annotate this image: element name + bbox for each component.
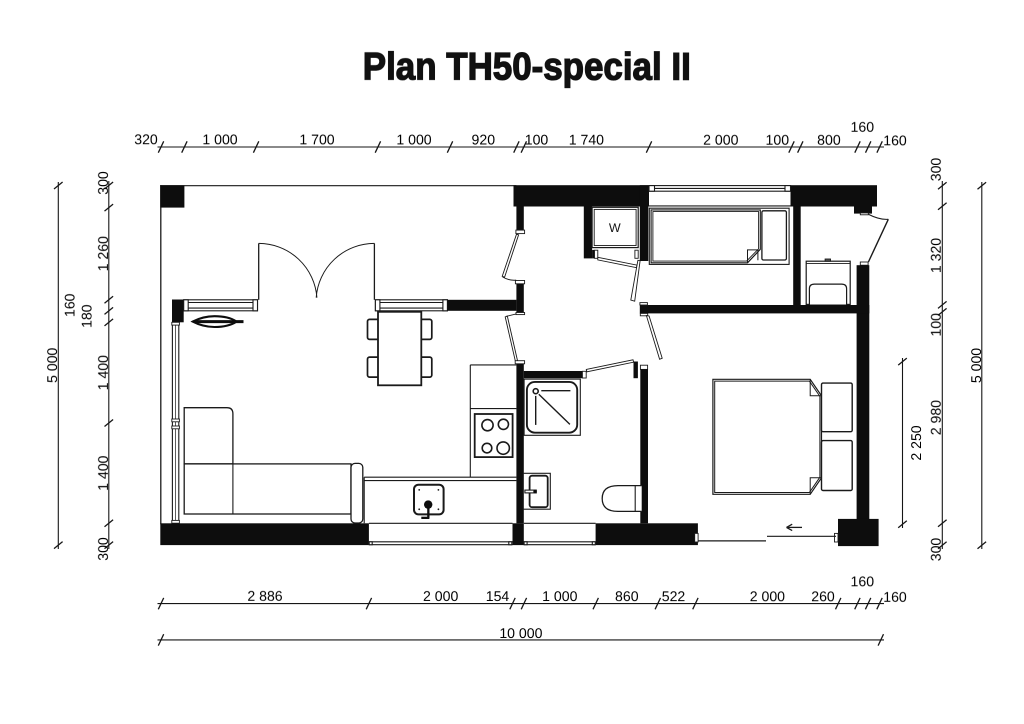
svg-text:920: 920 xyxy=(472,132,496,148)
svg-text:300: 300 xyxy=(95,537,111,561)
svg-text:1 000: 1 000 xyxy=(396,132,431,148)
svg-text:1 260: 1 260 xyxy=(95,236,111,271)
svg-text:160: 160 xyxy=(62,293,78,317)
svg-text:522: 522 xyxy=(662,588,686,604)
svg-text:5 000: 5 000 xyxy=(44,348,60,383)
svg-text:320: 320 xyxy=(134,131,158,147)
svg-text:154: 154 xyxy=(486,588,510,604)
svg-text:1 000: 1 000 xyxy=(202,131,237,147)
svg-text:160: 160 xyxy=(851,573,875,589)
svg-text:260: 260 xyxy=(811,588,835,604)
svg-text:1 740: 1 740 xyxy=(569,132,604,148)
svg-text:2 000: 2 000 xyxy=(703,132,738,148)
svg-text:2 980: 2 980 xyxy=(928,400,944,435)
svg-text:1 700: 1 700 xyxy=(299,131,334,147)
svg-text:10 000: 10 000 xyxy=(499,625,542,641)
svg-text:1 000: 1 000 xyxy=(542,588,577,604)
svg-text:1 320: 1 320 xyxy=(928,238,944,273)
svg-text:2 886: 2 886 xyxy=(247,588,282,604)
svg-text:160: 160 xyxy=(851,119,875,135)
svg-text:300: 300 xyxy=(928,158,944,182)
svg-text:100: 100 xyxy=(766,132,790,148)
svg-text:300: 300 xyxy=(95,171,111,195)
svg-text:1 400: 1 400 xyxy=(95,355,111,390)
svg-text:180: 180 xyxy=(79,304,95,328)
svg-text:2 000: 2 000 xyxy=(750,588,785,604)
svg-text:160: 160 xyxy=(883,132,907,148)
svg-text:1 400: 1 400 xyxy=(95,455,111,490)
svg-text:100: 100 xyxy=(928,313,944,337)
svg-text:5 000: 5 000 xyxy=(968,348,984,383)
svg-text:Plan TH50-special II: Plan TH50-special II xyxy=(363,45,691,88)
svg-text:2 250: 2 250 xyxy=(908,425,924,460)
svg-text:860: 860 xyxy=(615,588,639,604)
svg-text:100: 100 xyxy=(525,132,549,148)
svg-text:800: 800 xyxy=(817,132,841,148)
svg-text:W: W xyxy=(609,221,621,235)
svg-text:2 000: 2 000 xyxy=(423,588,458,604)
svg-text:160: 160 xyxy=(883,589,907,605)
svg-text:300: 300 xyxy=(928,538,944,562)
